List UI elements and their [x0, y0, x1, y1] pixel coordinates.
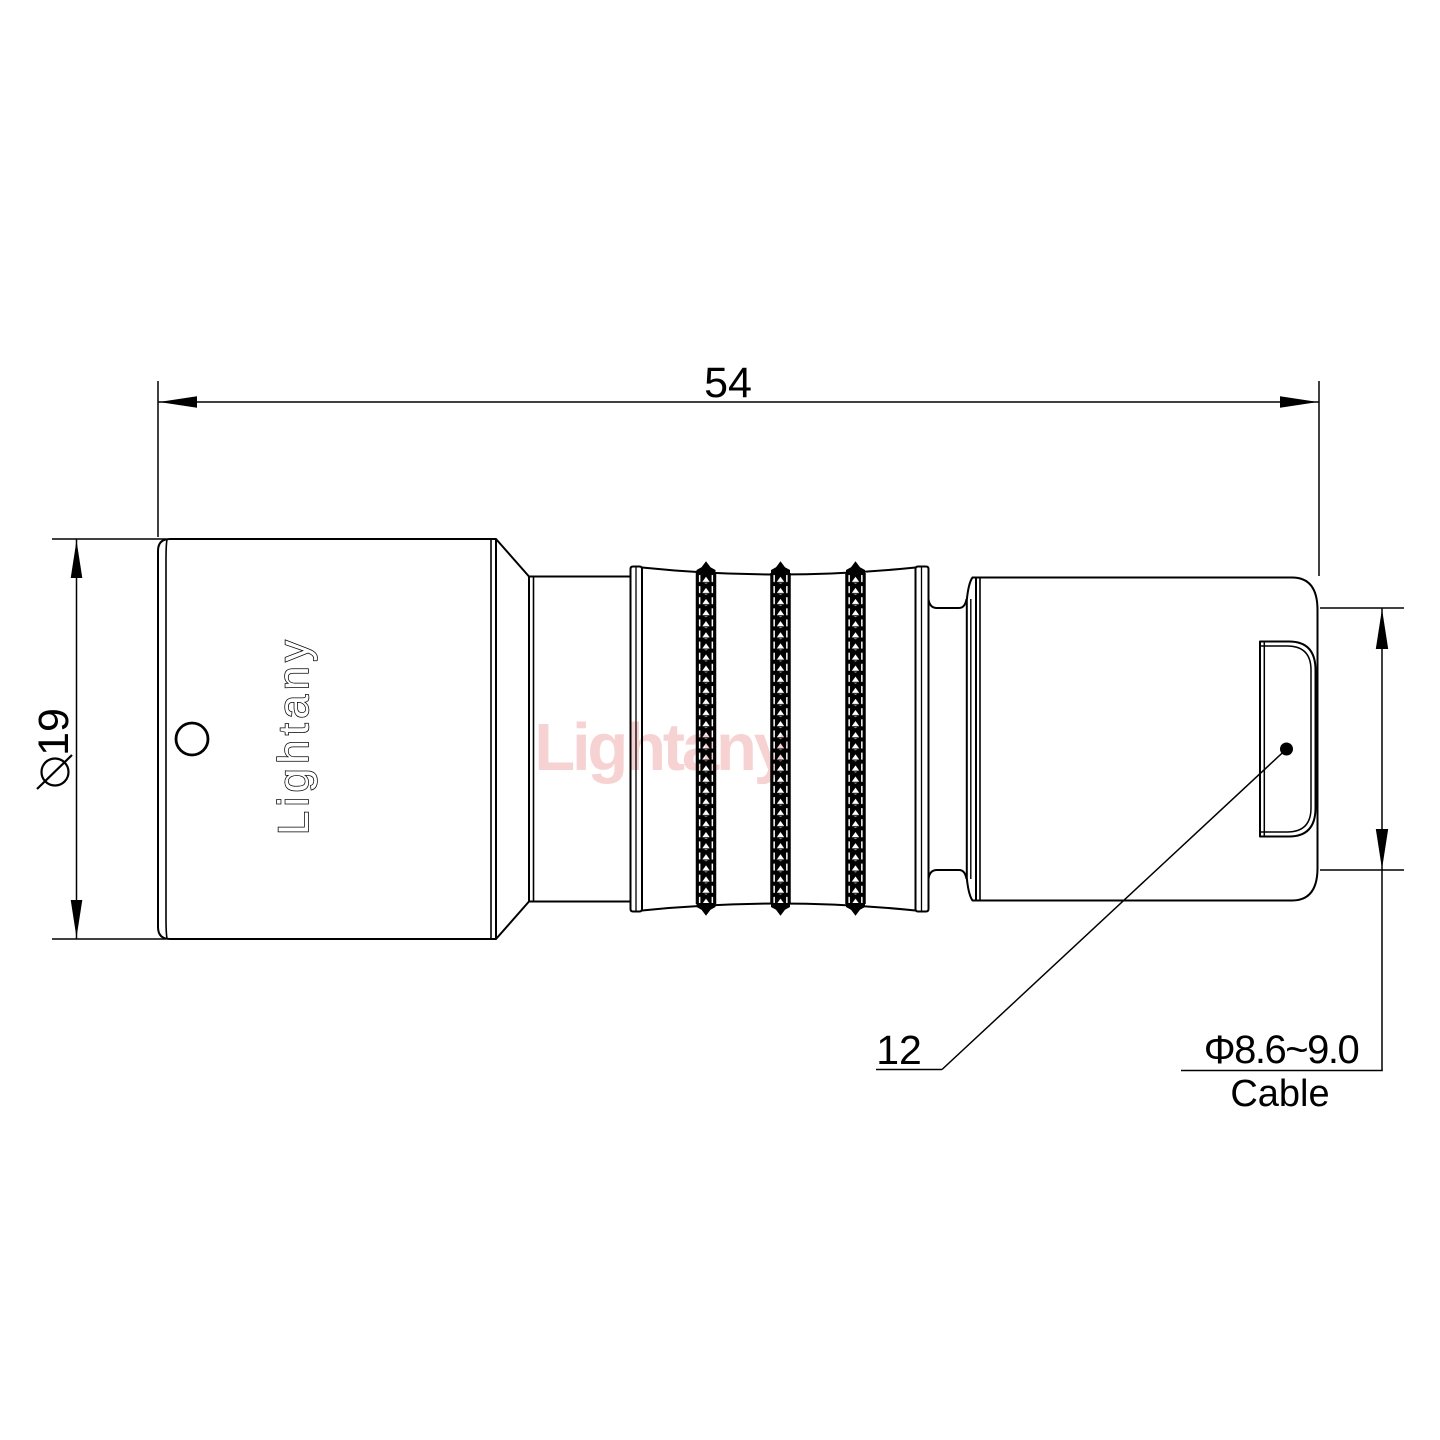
- svg-text:Cable: Cable: [1230, 1073, 1329, 1115]
- svg-text:19: 19: [30, 708, 78, 756]
- svg-text:54: 54: [704, 359, 752, 407]
- svg-text:Lightany: Lightany: [534, 710, 790, 785]
- svg-text:Φ8.6~9.0: Φ8.6~9.0: [1204, 1028, 1359, 1072]
- svg-text:12: 12: [876, 1027, 922, 1073]
- svg-text:Lightany: Lightany: [270, 636, 318, 835]
